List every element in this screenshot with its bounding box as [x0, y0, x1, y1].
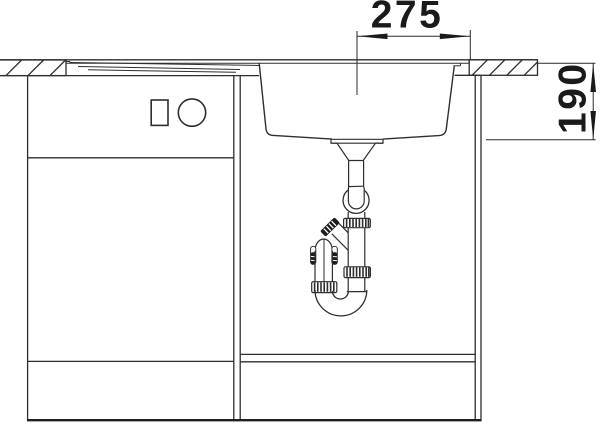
- svg-text:190: 190: [552, 61, 595, 134]
- svg-text:275: 275: [371, 0, 444, 37]
